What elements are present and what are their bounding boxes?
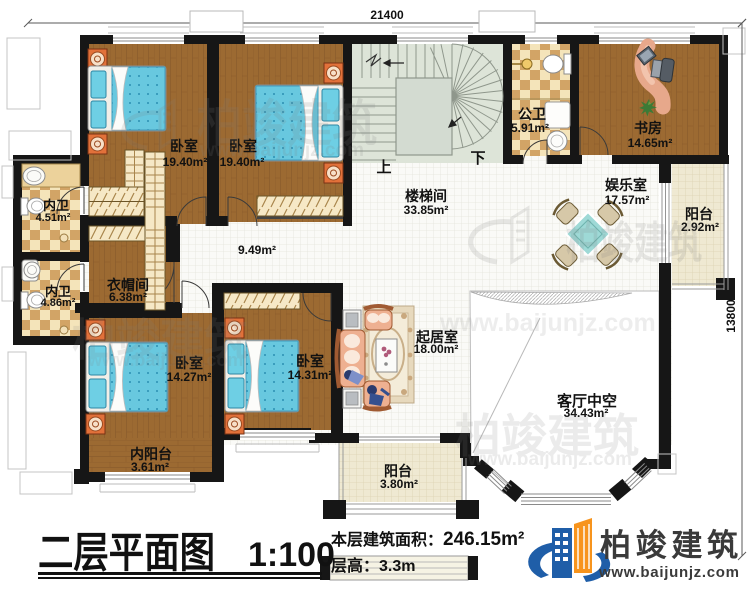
svg-text:17.57m²: 17.57m² <box>605 193 650 207</box>
svg-text:21400: 21400 <box>370 8 404 22</box>
svg-text:www.baijunjz.com: www.baijunjz.com <box>598 564 739 581</box>
svg-text:二层平面图: 二层平面图 <box>38 529 215 576</box>
svg-text:9.49m²: 9.49m² <box>238 243 276 257</box>
svg-text:4.86m²: 4.86m² <box>41 297 76 309</box>
svg-text:www.baijunjz.com: www.baijunjz.com <box>87 350 243 370</box>
svg-text:www.baijunjz.com: www.baijunjz.com <box>439 309 656 337</box>
svg-text:6.38m²: 6.38m² <box>109 290 147 304</box>
svg-text:公卫: 公卫 <box>518 106 546 122</box>
svg-text:13800: 13800 <box>724 299 738 333</box>
svg-text:14.65m²: 14.65m² <box>628 136 673 150</box>
svg-text:娱乐室: 娱乐室 <box>605 177 647 193</box>
svg-text:3.80m²: 3.80m² <box>380 477 418 491</box>
svg-text:层高：3.3m: 层高：3.3m <box>331 556 415 575</box>
svg-text:www.baijunjz.com: www.baijunjz.com <box>467 449 632 470</box>
svg-text:上: 上 <box>376 159 391 176</box>
svg-text:3.61m²: 3.61m² <box>131 460 169 474</box>
svg-text:4.51m²: 4.51m² <box>36 212 71 224</box>
svg-text:1:100: 1:100 <box>248 536 335 574</box>
svg-text:www.baijunjz.com: www.baijunjz.com <box>199 140 364 161</box>
svg-text:柏竣建筑: 柏竣建筑 <box>566 219 702 268</box>
svg-text:5.91m²: 5.91m² <box>511 121 549 135</box>
svg-text:33.85m²: 33.85m² <box>404 203 449 217</box>
svg-text:卧室: 卧室 <box>296 353 324 369</box>
svg-text:下: 下 <box>470 150 485 167</box>
svg-text:14.31m²: 14.31m² <box>288 368 333 382</box>
svg-text:书房: 书房 <box>634 120 662 136</box>
svg-text:14.27m²: 14.27m² <box>167 370 212 384</box>
svg-text:18.00m²: 18.00m² <box>414 342 459 356</box>
svg-text:内卫: 内卫 <box>43 198 69 213</box>
svg-text:本层建筑面积：246.15m²: 本层建筑面积：246.15m² <box>331 529 524 550</box>
svg-text:楼梯间: 楼梯间 <box>405 188 447 204</box>
